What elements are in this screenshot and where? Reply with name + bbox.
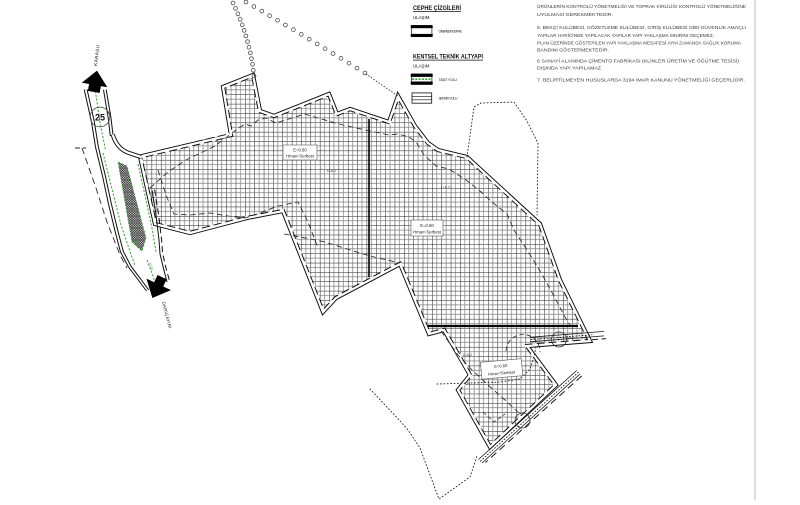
svg-text:ÖNERİLEN CEPHE: ÖNERİLEN CEPHE: [439, 29, 463, 34]
svg-text:7. BELİRTİLMEYEN HUSUSLA: 7. BELİRTİLMEYEN HUSUSLARDA 3194 İMAR KA…: [537, 78, 745, 83]
svg-text:E=0.60: E=0.60: [420, 223, 434, 228]
svg-text:Hmax=Serbest: Hmax=Serbest: [286, 154, 315, 159]
svg-text:ULAŞIM: ULAŞIM: [413, 63, 430, 68]
svg-text:TAŞIT YOLU: TAŞIT YOLU: [439, 78, 458, 82]
svg-text:CEPHE ÇİZGİLERİ: CEPHE ÇİZGİLERİ: [413, 4, 461, 12]
svg-text:BANDINI GÖSTERMEKTEDİR.: BANDINI GÖSTERMEKTEDİR.: [537, 48, 609, 53]
svg-text:KENTSEL TEKNİK ALTYAPI: KENTSEL TEKNİK ALTYAPI: [413, 52, 483, 60]
svg-text:UYULMASI GEREKMEKTEDİR.: UYULMASI GEREKMEKTEDİR.: [537, 12, 613, 17]
svg-text:U.A.2: U.A.2: [463, 353, 472, 357]
svg-text:Hmax=Serbest: Hmax=Serbest: [413, 230, 442, 235]
svg-text:SERVİS YOLU: SERVİS YOLU: [439, 96, 458, 101]
svg-text:YAPILAR HARİCİNDE YAPILACAK: YAPILAR HARİCİNDE YAPILACAK YAPILAR YAPI…: [537, 33, 714, 38]
svg-text:25: 25: [95, 113, 105, 123]
svg-text:PLAN ÜZERİNDE GÖSTERİLEN YAPI: PLAN ÜZERİNDE GÖSTERİLEN YAPI YAKLAŞMA M…: [537, 41, 741, 46]
svg-text:E=0.60: E=0.60: [293, 148, 307, 153]
svg-text:6 SANAYİ ALANINDA ÇİMENTO FABR: 6 SANAYİ ALANINDA ÇİMENTO FABRİKASI (KLİ…: [537, 59, 740, 64]
svg-text:U.A.2: U.A.2: [441, 186, 450, 190]
svg-text:ULAŞIM: ULAŞIM: [413, 15, 430, 20]
svg-text:ÜRÜNLERİN KONTROLÜ YÖNETMELİ: ÜRÜNLERİN KONTROLÜ YÖNETMELİĞİ VE TOPRAK…: [537, 4, 746, 9]
svg-text:5. BEKÇİ KULÜBESİ, GÖZETLEME: 5. BEKÇİ KULÜBESİ, GÖZETLEME KULÜBESİ, G…: [537, 25, 746, 30]
svg-text:m: m: [108, 111, 111, 115]
svg-text:DIŞINDA YAPI YAPILAMAZ: DIŞINDA YAPI YAPILAMAZ: [537, 66, 601, 71]
svg-text:U.A.2: U.A.2: [327, 169, 336, 173]
